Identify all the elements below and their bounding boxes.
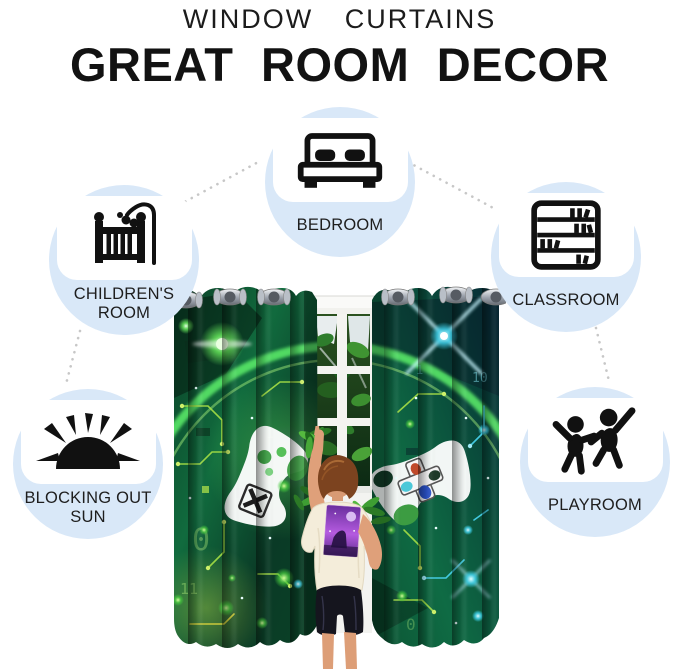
bed-icon (294, 129, 386, 191)
badge-classroom-panel (499, 193, 634, 277)
sun-icon (36, 411, 140, 473)
connector-childrens-sun (66, 331, 80, 384)
badge-blocking-out-sun-label: BLOCKING OUT SUN (21, 484, 156, 532)
connector-classroom-playroom (596, 328, 609, 381)
boy-leg (322, 633, 334, 669)
bookshelf-icon (529, 198, 603, 272)
badge-childrens-room-label: CHILDREN'S ROOM (57, 280, 192, 328)
badge-blocking-out-sun-panel (21, 400, 156, 484)
badge-bedroom-label: BEDROOM (273, 202, 408, 250)
badge-playroom: PLAYROOM (520, 387, 670, 537)
badge-blocking-out-sun: BLOCKING OUT SUN (13, 389, 163, 539)
svg-text:0: 0 (406, 615, 416, 634)
badge-bedroom-panel (273, 118, 408, 202)
badge-playroom-panel (528, 398, 663, 482)
badge-classroom: CLASSROOM (491, 182, 641, 332)
badge-classroom-label: CLASSROOM (499, 277, 634, 325)
badge-bedroom: BEDROOM (265, 107, 415, 257)
tshirt-print (323, 505, 360, 557)
badge-childrens-room: CHILDREN'S ROOM (49, 185, 199, 335)
crib-icon (83, 199, 165, 277)
children-playing-icon (545, 401, 645, 479)
connector-bedroom-classroom (408, 162, 497, 210)
badge-childrens-room-panel (57, 196, 192, 280)
promo-infographic: WINDOW CURTAINS GREAT ROOM DECOR (0, 0, 679, 669)
boy-leg (344, 632, 357, 669)
product-photo-curtains: 0 11 1 10 0 1 (166, 278, 506, 669)
badge-playroom-label: PLAYROOM (528, 482, 663, 530)
